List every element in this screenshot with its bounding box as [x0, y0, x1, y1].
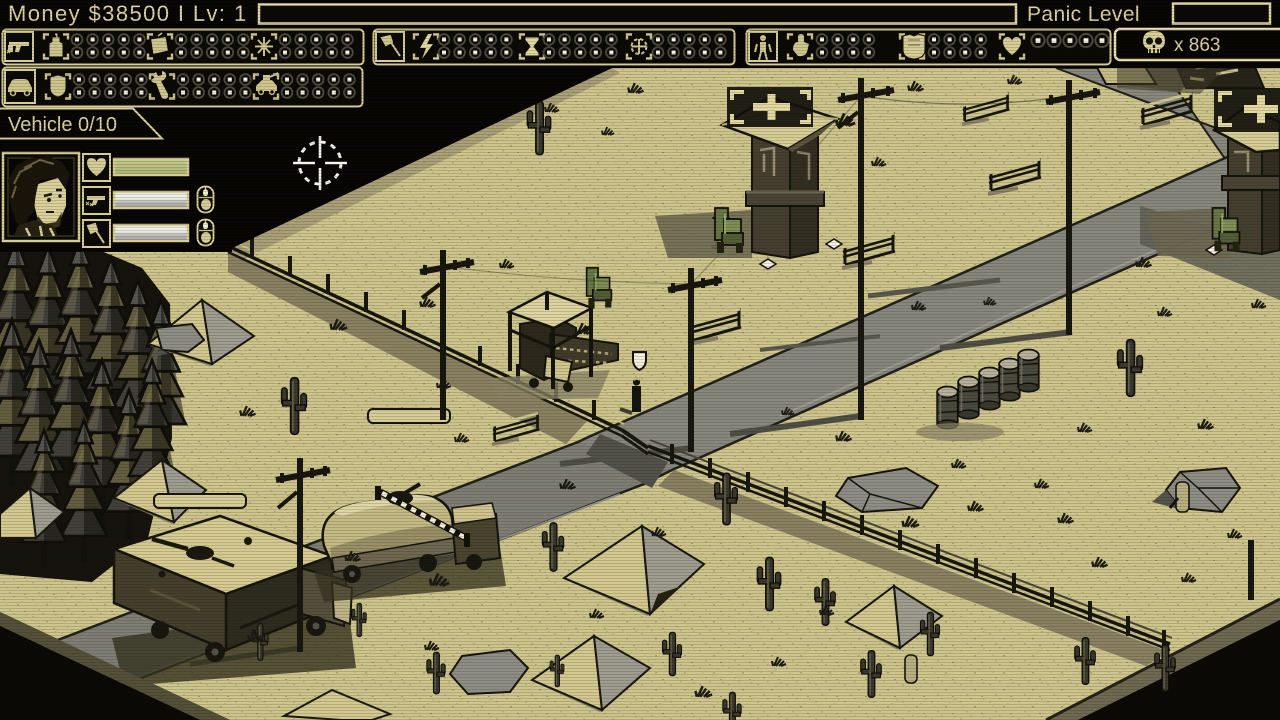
svg-text:Panic Level: Panic Level: [1027, 3, 1140, 26]
svg-text:Money $38500 I Lv: 1: Money $38500 I Lv: 1: [8, 1, 248, 26]
svg-text:Vehicle 0/10: Vehicle 0/10: [8, 114, 117, 136]
svg-text:x 863: x 863: [1174, 35, 1220, 56]
